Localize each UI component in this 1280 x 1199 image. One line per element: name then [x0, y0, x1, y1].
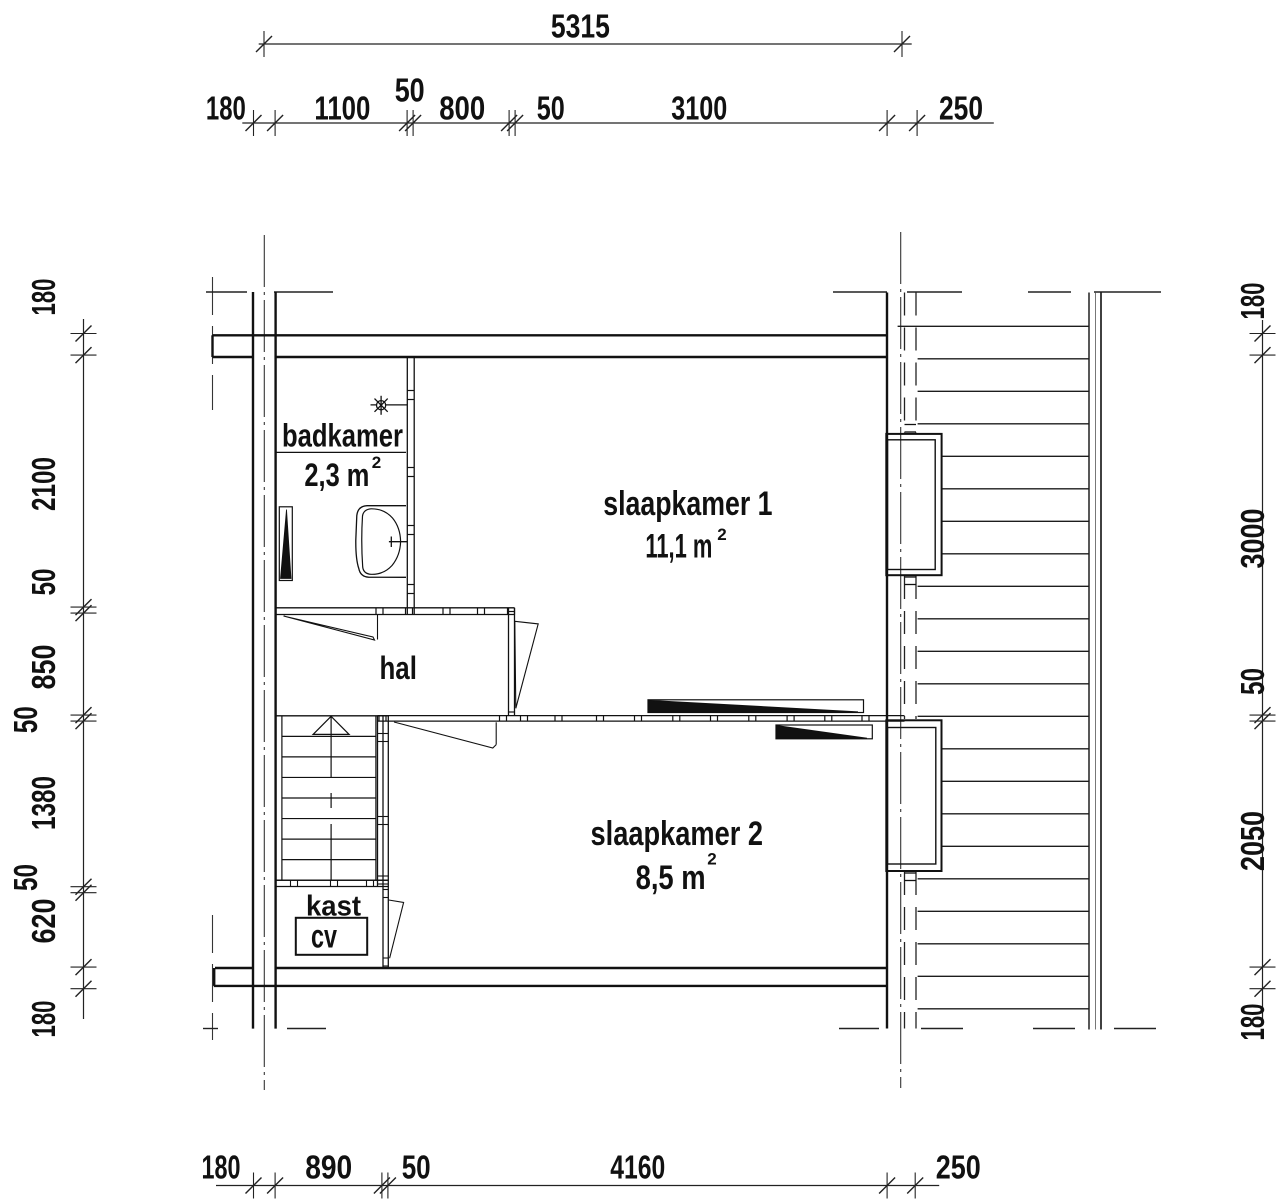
svg-text:180: 180	[1234, 283, 1271, 320]
svg-text:50: 50	[395, 72, 425, 109]
svg-text:2: 2	[372, 453, 381, 472]
svg-text:1100: 1100	[314, 89, 370, 126]
svg-text:250: 250	[939, 89, 983, 126]
svg-text:8,5 m: 8,5 m	[636, 859, 706, 897]
svg-text:2: 2	[717, 525, 726, 544]
svg-text:3100: 3100	[671, 89, 727, 126]
svg-text:cv: cv	[311, 917, 337, 954]
svg-text:180: 180	[206, 89, 246, 126]
svg-text:slaapkamer 2: slaapkamer 2	[591, 815, 764, 853]
svg-text:badkamer: badkamer	[282, 418, 403, 454]
svg-text:50: 50	[1234, 668, 1271, 695]
svg-text:50: 50	[7, 706, 44, 733]
svg-text:5315: 5315	[551, 7, 610, 44]
svg-text:620: 620	[25, 899, 62, 944]
svg-text:180: 180	[25, 279, 62, 316]
svg-text:3000: 3000	[1234, 509, 1271, 569]
svg-text:slaapkamer 1: slaapkamer 1	[603, 485, 772, 523]
svg-text:180: 180	[1234, 1004, 1271, 1041]
svg-text:11,1 m: 11,1 m	[645, 527, 712, 565]
svg-text:180: 180	[25, 1001, 62, 1038]
svg-text:250: 250	[936, 1149, 981, 1186]
svg-text:890: 890	[305, 1149, 352, 1186]
svg-text:2100: 2100	[25, 457, 62, 511]
svg-text:50: 50	[25, 569, 62, 596]
svg-text:50: 50	[402, 1149, 431, 1186]
svg-text:hal: hal	[380, 650, 417, 686]
svg-text:2050: 2050	[1234, 811, 1271, 871]
svg-text:2: 2	[707, 850, 716, 869]
svg-text:800: 800	[439, 89, 485, 126]
svg-text:4160: 4160	[610, 1149, 665, 1186]
svg-text:1380: 1380	[25, 776, 62, 830]
svg-text:2,3 m: 2,3 m	[304, 457, 369, 493]
svg-text:850: 850	[25, 645, 62, 690]
svg-text:50: 50	[7, 864, 44, 891]
svg-text:50: 50	[537, 89, 565, 126]
svg-text:180: 180	[202, 1149, 241, 1186]
